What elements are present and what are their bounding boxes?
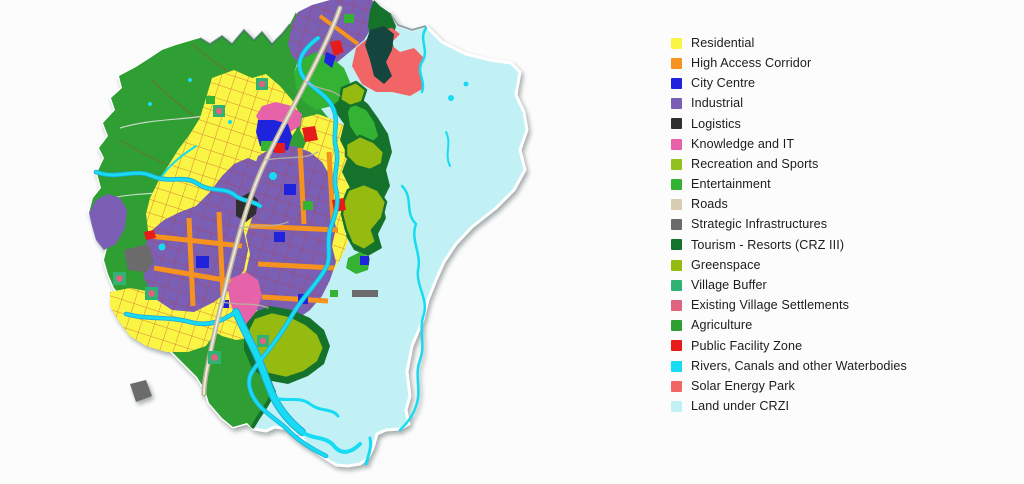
legend-label: City Centre: [691, 77, 755, 90]
legend-label: Residential: [691, 37, 754, 50]
legend-item: Roads: [671, 195, 907, 215]
legend-swatch: [671, 300, 682, 311]
legend-label: Agriculture: [691, 319, 752, 332]
village-marker: [213, 105, 225, 117]
pond: [464, 82, 469, 87]
legend-item: Village Buffer: [671, 275, 907, 295]
city-centre-block: [284, 184, 296, 195]
village-settlement-dot: [259, 81, 265, 87]
legend-swatch: [671, 118, 682, 129]
city-centre-block: [196, 256, 209, 268]
legend-item: Industrial: [671, 94, 907, 114]
legend-item: Agriculture: [671, 316, 907, 336]
village-settlement-dot: [116, 275, 123, 282]
legend-item: Entertainment: [671, 174, 907, 194]
legend-item: Tourism - Resorts (CRZ III): [671, 235, 907, 255]
legend-swatch: [671, 179, 682, 190]
legend-swatch: [671, 260, 682, 271]
legend-item: Existing Village Settlements: [671, 295, 907, 315]
legend-item: Logistics: [671, 114, 907, 134]
legend-label: Logistics: [691, 118, 741, 131]
pond: [269, 172, 277, 180]
legend-item: Public Facility Zone: [671, 336, 907, 356]
pond: [188, 78, 192, 82]
legend: Residential High Access Corridor City Ce…: [671, 33, 907, 417]
legend-swatch: [671, 280, 682, 291]
legend-label: High Access Corridor: [691, 57, 811, 70]
legend-swatch: [671, 239, 682, 250]
legend-item: Strategic Infrastructures: [671, 215, 907, 235]
legend-swatch: [671, 58, 682, 69]
legend-swatch: [671, 219, 682, 230]
village-marker: [145, 287, 158, 300]
legend-swatch: [671, 320, 682, 331]
strategic-patch: [130, 380, 152, 402]
legend-item: Solar Energy Park: [671, 376, 907, 396]
legend-item: Greenspace: [671, 255, 907, 275]
legend-label: Recreation and Sports: [691, 158, 818, 171]
legend-swatch: [671, 199, 682, 210]
mini-park: [330, 290, 338, 297]
city-centre-block: [360, 256, 369, 265]
legend-label: Existing Village Settlements: [691, 299, 849, 312]
legend-item: Knowledge and IT: [671, 134, 907, 154]
pond: [159, 244, 166, 251]
legend-swatch: [671, 139, 682, 150]
legend-label: Public Facility Zone: [691, 340, 802, 353]
legend-swatch: [671, 159, 682, 170]
landmass-group: [85, 0, 527, 466]
village-marker: [256, 78, 268, 90]
pond: [448, 95, 454, 101]
legend-label: Land under CRZI: [691, 400, 789, 413]
legend-label: Roads: [691, 198, 728, 211]
village-settlement-dot: [211, 354, 218, 361]
city-centre-block: [274, 232, 285, 242]
legend-item: Rivers, Canals and other Waterbodies: [671, 356, 907, 376]
legend-label: Industrial: [691, 97, 743, 110]
mini-park: [303, 201, 313, 210]
pond: [148, 102, 152, 106]
legend-swatch: [671, 78, 682, 89]
legend-item: City Centre: [671, 73, 907, 93]
legend-label: Village Buffer: [691, 279, 767, 292]
legend-label: Knowledge and IT: [691, 138, 794, 151]
legend-swatch: [671, 401, 682, 412]
mini-park: [206, 96, 215, 104]
legend-swatch: [671, 361, 682, 372]
mini-park: [344, 14, 354, 23]
village-settlement-dot: [260, 338, 266, 344]
legend-swatch: [671, 340, 682, 351]
strategic-patch: [352, 290, 378, 297]
village-marker: [113, 272, 126, 285]
village-marker: [208, 351, 221, 364]
legend-label: Solar Energy Park: [691, 380, 795, 393]
village-marker: [257, 335, 269, 347]
legend-label: Strategic Infrastructures: [691, 218, 827, 231]
legend-swatch: [671, 98, 682, 109]
legend-swatch: [671, 38, 682, 49]
legend-label: Rivers, Canals and other Waterbodies: [691, 360, 907, 373]
legend-item: Residential: [671, 33, 907, 53]
legend-label: Tourism - Resorts (CRZ III): [691, 239, 844, 252]
village-settlement-dot: [148, 290, 155, 297]
legend-item: High Access Corridor: [671, 53, 907, 73]
legend-item: Land under CRZI: [671, 396, 907, 416]
legend-label: Greenspace: [691, 259, 761, 272]
legend-swatch: [671, 381, 682, 392]
legend-label: Entertainment: [691, 178, 771, 191]
legend-item: Recreation and Sports: [671, 154, 907, 174]
pond: [228, 120, 232, 124]
village-settlement-dot: [216, 108, 222, 114]
